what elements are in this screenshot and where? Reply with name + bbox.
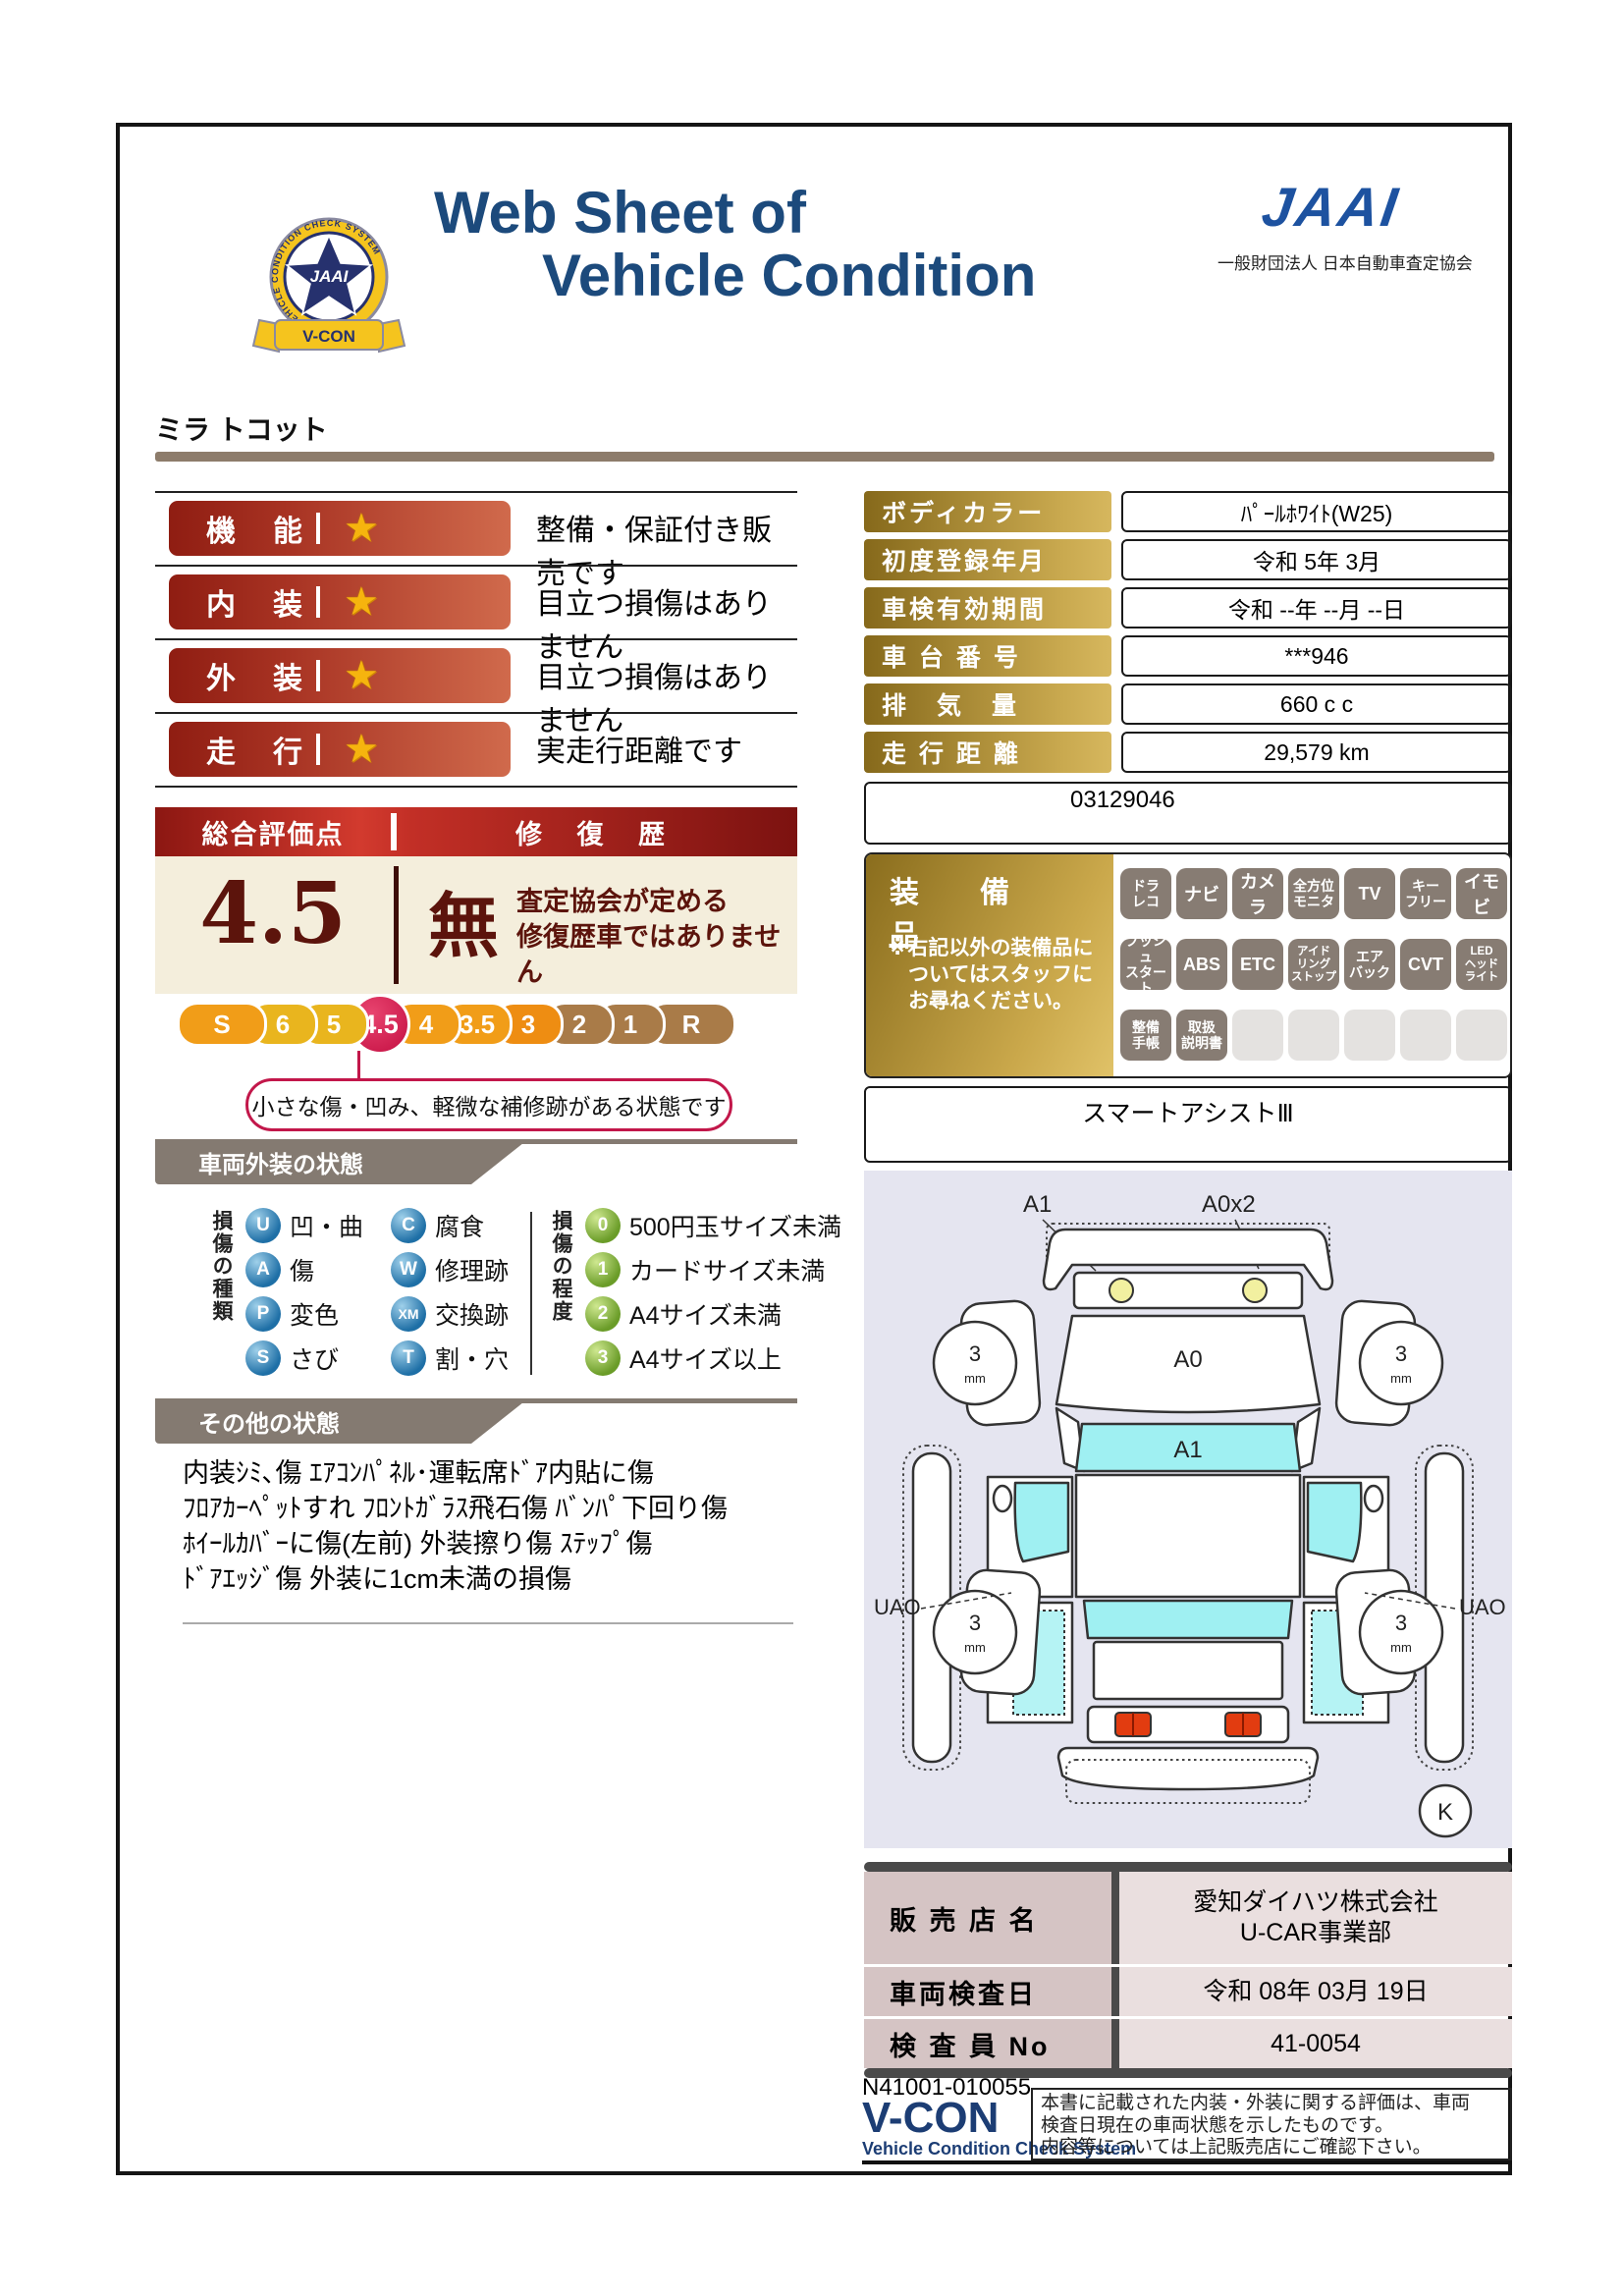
other-condition-line: ﾄﾞｱｴｯｼﾞ傷 外装に1cm未満の損傷: [183, 1561, 728, 1597]
vehicle-condition-sheet: VEHICLE CONDITION CHECK SYSTEM JAAI V-CO…: [0, 0, 1623, 2296]
overall-score-box: 総合評価点 修 復 歴 4.5 無 査定協会が定める 修復歴車ではありません: [155, 807, 797, 994]
vcon-logo: V-CON: [862, 2094, 999, 2143]
info-value: 29,579 km: [1121, 732, 1512, 773]
legend-item: C腐食: [391, 1208, 509, 1243]
dealer-value-line: 愛知ダイハツ株式会社: [1193, 1887, 1438, 1918]
car-diagram-svg: A1 A0x2 A0 3 mm 3 mm A1: [864, 1171, 1512, 1848]
overall-body-divider: [394, 866, 399, 984]
dealer-row: 車両検査日令和 08年 03月 19日: [864, 1967, 1512, 2016]
vehicle-info-table: ボディカラーﾊﾟｰﾙﾎﾜｲﾄ(W25)初度登録年月令和 5年 3月車検有効期間令…: [864, 491, 1512, 780]
footer-note-line: 内容等については上記販売店にご確認下さい。: [1041, 2137, 1502, 2159]
legend-code-P: P: [245, 1296, 281, 1332]
legend-code-0: 0: [585, 1208, 621, 1243]
legend-divider: [530, 1212, 532, 1375]
tire-unit: mm: [964, 1640, 986, 1655]
rating-rows: 機 能★整備・保証付き販売です内 装★目立つ損傷はありません外 装★目立つ損傷は…: [155, 491, 797, 788]
dealer-row: 販 売 店 名愛知ダイハツ株式会社U-CAR事業部: [864, 1872, 1512, 1964]
legend-item: 2A4サイズ未満: [585, 1296, 841, 1332]
badge-line: キー: [1412, 878, 1439, 894]
info-value: ﾊﾟｰﾙﾎﾜｲﾄ(W25): [1121, 491, 1512, 532]
dealer-row-label: 販 売 店 名: [864, 1872, 1111, 1964]
damage-degrees: 0500円玉サイズ未満1カードサイズ未満2A4サイズ未満3A4サイズ以上: [585, 1208, 841, 1376]
legend-code-C: C: [391, 1208, 426, 1243]
badge-line: イモビ: [1456, 868, 1507, 919]
badge-line: カメラ: [1232, 868, 1283, 919]
legend-item: 0500円玉サイズ未満: [585, 1208, 841, 1243]
badge-row: プッシュスタートABSETCアイドリングストップエアバックCVTLEDヘッドライ…: [1120, 939, 1507, 990]
legend-label: 変色: [290, 1296, 339, 1332]
diagram-side-left-label: UAO: [874, 1595, 921, 1619]
dealer-value-line: 41-0054: [1271, 2029, 1361, 2059]
equipment-badge: ETC: [1232, 939, 1283, 990]
equipment-badge: TV: [1344, 868, 1395, 919]
equipment-badges: ドラレコナビカメラ全方位モニタTVキーフリーイモビプッシュスタートABSETCア…: [1113, 854, 1512, 1076]
damage-kinds-col1: U凹・曲A傷P変色Sさび: [245, 1208, 363, 1376]
damage-degree-title: 損傷の程度: [546, 1210, 575, 1367]
overall-score-value: 4.5: [155, 864, 391, 963]
badge-row: 整備手帳取扱説明書: [1120, 1010, 1507, 1061]
rating-label: 内 装: [169, 580, 306, 624]
inspection-number-box: 03129046: [864, 782, 1512, 845]
legend-item: 3A4サイズ以上: [585, 1340, 841, 1376]
info-row: 走 行 距 離29,579 km: [864, 732, 1512, 780]
equipment-badge: CVT: [1400, 939, 1451, 990]
other-condition-line: ﾌﾛｱｶｰﾍﾟｯﾄすれ ﾌﾛﾝﾄｶﾞﾗｽ飛石傷 ﾊﾞﾝﾊﾟ下回り傷: [183, 1491, 728, 1526]
tire-unit: mm: [1390, 1371, 1412, 1386]
rating-row: 走 行★実走行距離です: [155, 712, 797, 788]
info-label: 車検有効期間: [864, 587, 1111, 629]
rating-divider: [316, 586, 320, 618]
badge-line: フリー: [1405, 894, 1446, 909]
overall-header: 総合評価点 修 復 歴: [155, 807, 797, 856]
info-row: 車検有効期間令和 --年 --月 --日: [864, 587, 1512, 635]
scale-callout-connector: [357, 1051, 360, 1080]
rating-pill: 外 装★: [169, 648, 511, 703]
rating-label: 走 行: [169, 728, 306, 771]
equipment-badge: ナビ: [1176, 868, 1227, 919]
repair-desc-line1: 査定協会が定める: [516, 884, 797, 919]
car-diagram: A1 A0x2 A0 3 mm 3 mm A1: [864, 1171, 1512, 1848]
footer-note-line: 検査日現在の車両状態を示したものです。: [1041, 2115, 1502, 2138]
rating-row: 内 装★目立つ損傷はありません: [155, 565, 797, 638]
sheet-title-line2: Vehicle Condition: [542, 242, 1036, 309]
legend-code-XM: XM: [391, 1296, 426, 1332]
legend-item: W修理跡: [391, 1252, 509, 1287]
legend-code-3: 3: [585, 1340, 621, 1376]
badge-line: LED: [1471, 946, 1493, 958]
badge-line: 全方位: [1293, 878, 1334, 894]
legend-item: U凹・曲: [245, 1208, 363, 1243]
equipment-badge-empty: [1344, 1010, 1395, 1061]
legend-label: 傷: [290, 1252, 314, 1287]
overall-body: 4.5 無 査定協会が定める 修復歴車ではありません: [155, 856, 797, 994]
other-section-title: その他の状態: [155, 1398, 528, 1444]
equipment-note: ※右記以外の装備品についてはスタッフにお尋ねください。: [888, 935, 1093, 1014]
equipment-badge-empty: [1288, 1010, 1339, 1061]
legend-label: カードサイズ未満: [629, 1252, 825, 1287]
damage-kind-title: 損傷の種類: [206, 1210, 236, 1367]
equipment-badge-empty: [1456, 1010, 1507, 1061]
rating-label: 機 能: [169, 507, 306, 550]
info-value: 660 c c: [1121, 683, 1512, 725]
badge-line: エア: [1356, 949, 1383, 964]
legend-label: 交換跡: [435, 1296, 509, 1332]
dealer-row: 検 査 員 No41-0054: [864, 2019, 1512, 2068]
legend-code-U: U: [245, 1208, 281, 1243]
repair-history-desc: 査定協会が定める 修復歴車ではありません: [516, 884, 797, 990]
repair-history-title: 修 復 歴: [397, 807, 797, 856]
badge-line: モニタ: [1293, 894, 1334, 909]
info-label: ボディカラー: [864, 491, 1111, 532]
vehicle-name: ミラ トコット: [155, 409, 328, 448]
vcon-emblem-icon: VEHICLE CONDITION CHECK SYSTEM JAAI V-CO…: [245, 214, 412, 371]
badge-line: 手帳: [1132, 1035, 1160, 1051]
diagram-side-right-label: UAO: [1459, 1595, 1506, 1619]
badge-line: ドラ: [1132, 878, 1160, 894]
emblem-star-label: JAAI: [310, 267, 350, 286]
info-row: 初度登録年月令和 5年 3月: [864, 539, 1512, 587]
equipment-note-line: お尋ねください。: [888, 988, 1093, 1014]
badge-row: ドラレコナビカメラ全方位モニタTVキーフリーイモビ: [1120, 868, 1507, 919]
footer-rule: [862, 2160, 1512, 2164]
dealer-value-line: 令和 08年 03月 19日: [1203, 1977, 1428, 2007]
equipment-badge: キーフリー: [1400, 868, 1451, 919]
other-condition-line: ﾎｲｰﾙｶﾊﾞｰに傷(左前) 外装擦り傷 ｽﾃｯﾌﾟ傷: [183, 1526, 728, 1561]
damage-kinds-col2: C腐食W修理跡XM交換跡T割・穴: [391, 1208, 509, 1376]
legend-label: さび: [290, 1340, 339, 1376]
badge-line: アイド: [1297, 946, 1330, 958]
header-divider: [155, 452, 1494, 462]
star-icon: ★: [344, 503, 379, 554]
score-scale: S654.543.5321R: [177, 994, 736, 1055]
star-icon: ★: [344, 576, 379, 628]
badge-line: 整備: [1132, 1019, 1160, 1035]
legend-item: A傷: [245, 1252, 363, 1287]
dealer-row-value: 令和 08年 03月 19日: [1119, 1967, 1512, 2016]
rating-divider: [316, 660, 320, 691]
dealer-row-value: 41-0054: [1119, 2019, 1512, 2068]
badge-line: ストップ: [1291, 971, 1336, 984]
tire-depth: 3: [1395, 1611, 1407, 1635]
equipment-badge: ABS: [1176, 939, 1227, 990]
equipment-badge: 整備手帳: [1120, 1010, 1171, 1061]
rating-desc: 実走行距離です: [536, 727, 742, 770]
equipment-title-panel: 装 備 品 ※右記以外の装備品についてはスタッフにお尋ねください。: [866, 854, 1113, 1076]
badge-line: 説明書: [1181, 1035, 1222, 1051]
jaai-organization: 一般財団法人 日本自動車査定協会: [1217, 249, 1473, 274]
equipment-badge: LEDヘッドライト: [1456, 939, 1507, 990]
legend-label: A4サイズ未満: [629, 1296, 782, 1332]
equipment-note-line: ※右記以外の装備品に: [888, 935, 1093, 961]
info-row: 車 台 番 号***946: [864, 635, 1512, 683]
equipment-badge: エアバック: [1344, 939, 1395, 990]
legend-label: 修理跡: [435, 1252, 509, 1287]
badge-line: プッシュ: [1120, 933, 1171, 964]
dealer-value-line: U-CAR事業部: [1240, 1918, 1391, 1948]
footer-disclaimer: 本書に記載された内装・外装に関する評価は、車両検査日現在の車両状態を示したもので…: [1031, 2088, 1512, 2160]
dealer-row-divider: [1111, 2019, 1119, 2068]
legend-code-A: A: [245, 1252, 281, 1287]
equipment-badge-empty: [1400, 1010, 1451, 1061]
equipment-badge: プッシュスタート: [1120, 939, 1171, 990]
other-section-underline: [183, 1622, 793, 1624]
legend-code-W: W: [391, 1252, 426, 1287]
diagram-corner-mark: K: [1437, 1799, 1453, 1826]
equipment-badge: イモビ: [1456, 868, 1507, 919]
badge-line: スタート: [1120, 964, 1171, 996]
badge-line: ナビ: [1184, 881, 1219, 906]
rating-pill: 機 能★: [169, 501, 511, 556]
star-icon: ★: [344, 650, 379, 701]
equipment-badge-empty: [1232, 1010, 1283, 1061]
legend-item: 1カードサイズ未満: [585, 1252, 841, 1287]
repair-desc-line2: 修復歴車ではありません: [516, 919, 797, 990]
dealer-table-topbar: [864, 1862, 1512, 1872]
info-value: 令和 --年 --月 --日: [1121, 587, 1512, 629]
emblem-ribbon-label: V-CON: [302, 327, 355, 346]
legend-item: Sさび: [245, 1340, 363, 1376]
equipment-badge: 取扱説明書: [1176, 1010, 1227, 1061]
dealer-row-label: 検 査 員 No: [864, 2019, 1111, 2068]
legend-label: 割・穴: [435, 1340, 509, 1376]
dealer-row-divider: [1111, 1872, 1119, 1964]
info-row: 排 気 量660 c c: [864, 683, 1512, 732]
info-label: 初度登録年月: [864, 539, 1111, 580]
info-value: ***946: [1121, 635, 1512, 677]
badge-line: ヘッド: [1465, 958, 1499, 971]
badge-line: TV: [1358, 884, 1380, 904]
legend-code-1: 1: [585, 1252, 621, 1287]
badge-line: リング: [1297, 958, 1331, 971]
equipment-badge: アイドリングストップ: [1288, 939, 1339, 990]
sheet-title-line1: Web Sheet of: [434, 179, 806, 246]
equipment-panel: 装 備 品 ※右記以外の装備品についてはスタッフにお尋ねください。 ドラレコナビ…: [864, 852, 1512, 1078]
tire-unit: mm: [964, 1371, 986, 1386]
rating-row: 外 装★目立つ損傷はありません: [155, 638, 797, 712]
smart-assist-box: スマートアシストⅢ: [864, 1086, 1512, 1163]
star-icon: ★: [344, 724, 379, 775]
legend-item: T割・穴: [391, 1340, 509, 1376]
legend-code-S: S: [245, 1340, 281, 1376]
score-callout: 小さな傷・凹み、軽微な補修跡がある状態です: [245, 1078, 732, 1131]
vcon-emblem: VEHICLE CONDITION CHECK SYSTEM JAAI V-CO…: [245, 214, 412, 371]
legend-item: P変色: [245, 1296, 363, 1332]
dealer-row-value: 愛知ダイハツ株式会社U-CAR事業部: [1119, 1872, 1512, 1964]
info-label: 車 台 番 号: [864, 635, 1111, 677]
rating-divider: [316, 513, 320, 544]
rating-label: 外 装: [169, 654, 306, 697]
badge-line: CVT: [1408, 955, 1443, 975]
legend-label: 凹・曲: [290, 1208, 363, 1243]
info-label: 走 行 距 離: [864, 732, 1111, 773]
equipment-note-line: ついてはスタッフに: [888, 961, 1093, 988]
equipment-badge: 全方位モニタ: [1288, 868, 1339, 919]
scale-segment-S: S: [177, 1002, 267, 1047]
legend-label: A4サイズ以上: [629, 1340, 782, 1376]
badge-line: レコ: [1132, 894, 1160, 909]
rating-row: 機 能★整備・保証付き販売です: [155, 491, 797, 565]
diagram-front-right-label: A0x2: [1202, 1191, 1256, 1218]
dealer-row-label: 車両検査日: [864, 1967, 1111, 2016]
info-label: 排 気 量: [864, 683, 1111, 725]
diagram-windshield-label: A1: [1173, 1437, 1202, 1463]
overall-score-title: 総合評価点: [155, 807, 391, 856]
dealer-row-divider: [1111, 1967, 1119, 2016]
tire-depth: 3: [1395, 1341, 1407, 1366]
badge-line: バック: [1349, 964, 1390, 980]
rating-divider: [316, 734, 320, 765]
other-condition-line: 内装ｼﾐ､傷 ｴｱｺﾝﾊﾟﾈﾙ･運転席ﾄﾞｱ内貼に傷: [183, 1455, 728, 1491]
legend-label: 腐食: [435, 1208, 484, 1243]
rating-pill: 内 装★: [169, 574, 511, 629]
equipment-badge: カメラ: [1232, 868, 1283, 919]
legend-code-2: 2: [585, 1296, 621, 1332]
equipment-badge: ドラレコ: [1120, 868, 1171, 919]
tire-unit: mm: [1390, 1640, 1412, 1655]
badge-line: ETC: [1240, 955, 1275, 975]
jaai-logo: JAAI: [1258, 175, 1404, 239]
legend-code-T: T: [391, 1340, 426, 1376]
diagram-front-left-label: A1: [1023, 1191, 1052, 1218]
legend-item: XM交換跡: [391, 1296, 509, 1332]
tire-depth: 3: [969, 1611, 981, 1635]
other-condition-text: 内装ｼﾐ､傷 ｴｱｺﾝﾊﾟﾈﾙ･運転席ﾄﾞｱ内貼に傷ﾌﾛｱｶｰﾍﾟｯﾄすれ ﾌﾛ…: [183, 1455, 728, 1597]
badge-line: ABS: [1183, 955, 1220, 975]
rating-pill: 走 行★: [169, 722, 511, 777]
tire-depth: 3: [969, 1341, 981, 1366]
exterior-section-title: 車両外装の状態: [155, 1139, 528, 1184]
legend-label: 500円玉サイズ未満: [629, 1208, 841, 1243]
footer-note-line: 本書に記載された内装・外装に関する評価は、車両: [1041, 2093, 1502, 2115]
info-row: ボディカラーﾊﾟｰﾙﾎﾜｲﾄ(W25): [864, 491, 1512, 539]
repair-history-value: 無: [428, 868, 499, 971]
diagram-hood-label: A0: [1173, 1346, 1202, 1373]
info-value: 令和 5年 3月: [1121, 539, 1512, 580]
badge-line: 取扱: [1188, 1019, 1216, 1035]
badge-line: ライト: [1465, 971, 1499, 984]
